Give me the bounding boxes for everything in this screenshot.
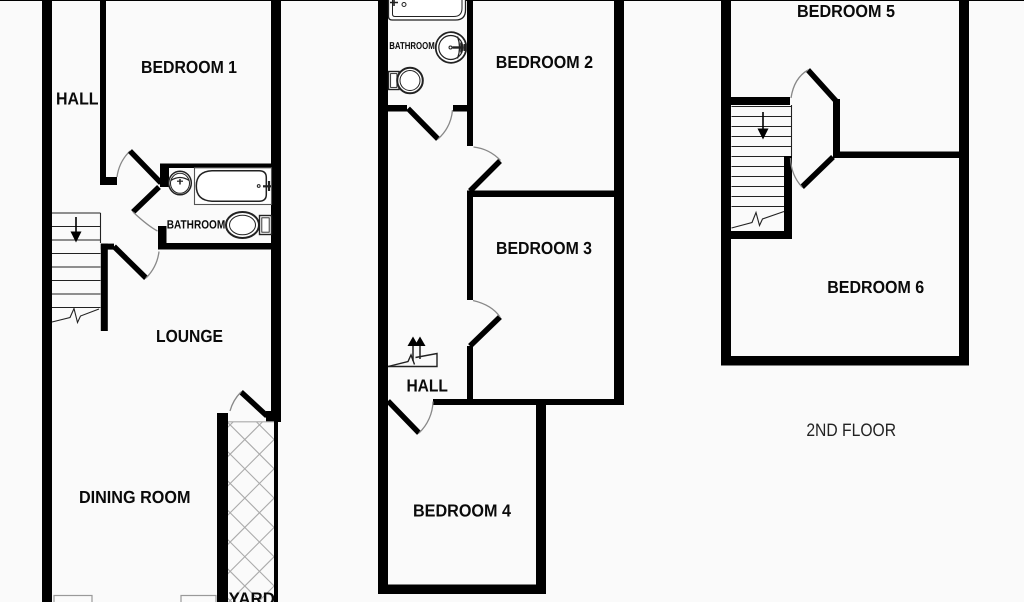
svg-text:HALL: HALL <box>406 375 448 395</box>
svg-text:YARD: YARD <box>229 589 275 602</box>
svg-text:LOUNGE: LOUNGE <box>156 326 223 346</box>
svg-text:BEDROOM 6: BEDROOM 6 <box>827 277 924 297</box>
svg-text:BEDROOM 5: BEDROOM 5 <box>797 1 895 21</box>
svg-text:2ND FLOOR: 2ND FLOOR <box>806 420 896 440</box>
svg-text:BEDROOM 3: BEDROOM 3 <box>496 238 592 258</box>
svg-text:BEDROOM 2: BEDROOM 2 <box>496 52 594 72</box>
svg-text:BEDROOM 1: BEDROOM 1 <box>141 57 237 77</box>
svg-text:BATHROOM: BATHROOM <box>389 41 435 52</box>
svg-text:BEDROOM 4: BEDROOM 4 <box>413 501 511 521</box>
svg-text:DINING ROOM: DINING ROOM <box>79 487 191 507</box>
svg-text:BATHROOM: BATHROOM <box>167 218 226 232</box>
svg-text:HALL: HALL <box>56 89 99 109</box>
